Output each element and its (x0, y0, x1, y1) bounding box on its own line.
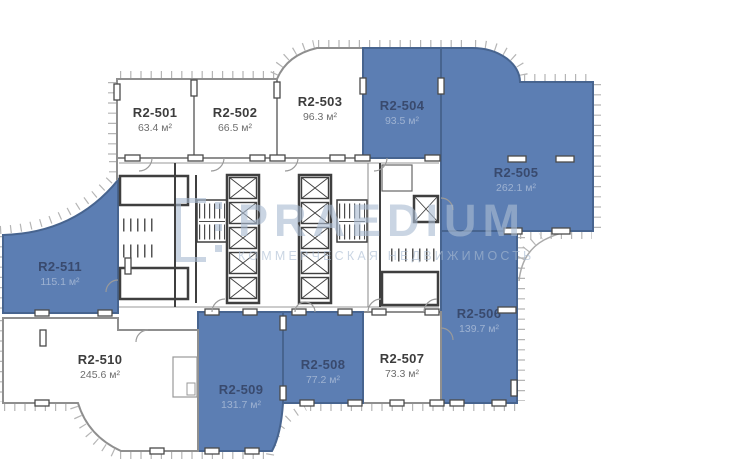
floor-plan: R2-501 63.4 м² R2-502 66.5 м² R2-503 96.… (0, 0, 733, 476)
elevator-bank-west (227, 175, 259, 303)
washrooms-right (368, 163, 438, 307)
unit-r2-503[interactable]: R2-503 96.3 м² (277, 48, 363, 158)
unit-label: R2-508 (301, 357, 345, 372)
unit-area: 66.5 м² (218, 122, 253, 134)
unit-area: 96.3 м² (303, 111, 338, 123)
stairwell-west (197, 200, 227, 242)
unit-area: 77.2 м² (306, 374, 341, 386)
unit-r2-505[interactable]: R2-505 262.1 м² (441, 48, 593, 231)
unit-label: R2-504 (380, 98, 425, 113)
unit-area: 73.3 м² (385, 368, 420, 380)
unit-shape (3, 318, 198, 451)
unit-area: 93.5 м² (385, 115, 420, 127)
unit-area: 63.4 м² (138, 122, 173, 134)
building-core (117, 158, 439, 307)
unit-label: R2-501 (133, 105, 177, 120)
unit-r2-508[interactable]: R2-508 77.2 м² (283, 312, 363, 403)
unit-r2-502[interactable]: R2-502 66.5 м² (194, 79, 277, 158)
unit-r2-504[interactable]: R2-504 93.5 м² (363, 48, 441, 158)
unit-area: 115.1 м² (40, 276, 80, 288)
unit-label: R2-507 (380, 351, 424, 366)
unit-label: R2-506 (457, 306, 501, 321)
unit-r2-510[interactable]: R2-510 245.6 м² (3, 318, 198, 451)
stairwell-east (337, 200, 367, 242)
unit-r2-509[interactable]: R2-509 131.7 м² (198, 312, 283, 451)
unit-label: R2-510 (78, 352, 122, 367)
unit-label: R2-511 (38, 259, 82, 274)
unit-area: 262.1 м² (496, 182, 536, 194)
unit-label: R2-502 (213, 105, 257, 120)
unit-label: R2-509 (219, 382, 263, 397)
unit-label: R2-505 (494, 165, 538, 180)
unit-r2-507[interactable]: R2-507 73.3 м² (363, 312, 441, 403)
unit-area: 131.7 м² (221, 399, 261, 411)
unit-area: 139.7 м² (459, 323, 499, 335)
unit-area: 245.6 м² (80, 369, 120, 381)
unit-label: R2-503 (298, 94, 342, 109)
washrooms-left (120, 163, 196, 307)
unit-r2-506[interactable]: R2-506 139.7 м² (441, 231, 517, 403)
unit-r2-511[interactable]: R2-511 115.1 м² (3, 180, 118, 313)
reception-desk (173, 357, 197, 397)
unit-shape (3, 180, 118, 313)
elevator-bank-east (299, 175, 331, 303)
unit-r2-501[interactable]: R2-501 63.4 м² (117, 79, 194, 158)
floor-plan-canvas: R2-501 63.4 м² R2-502 66.5 м² R2-503 96.… (0, 0, 733, 476)
unit-shape (441, 48, 593, 231)
